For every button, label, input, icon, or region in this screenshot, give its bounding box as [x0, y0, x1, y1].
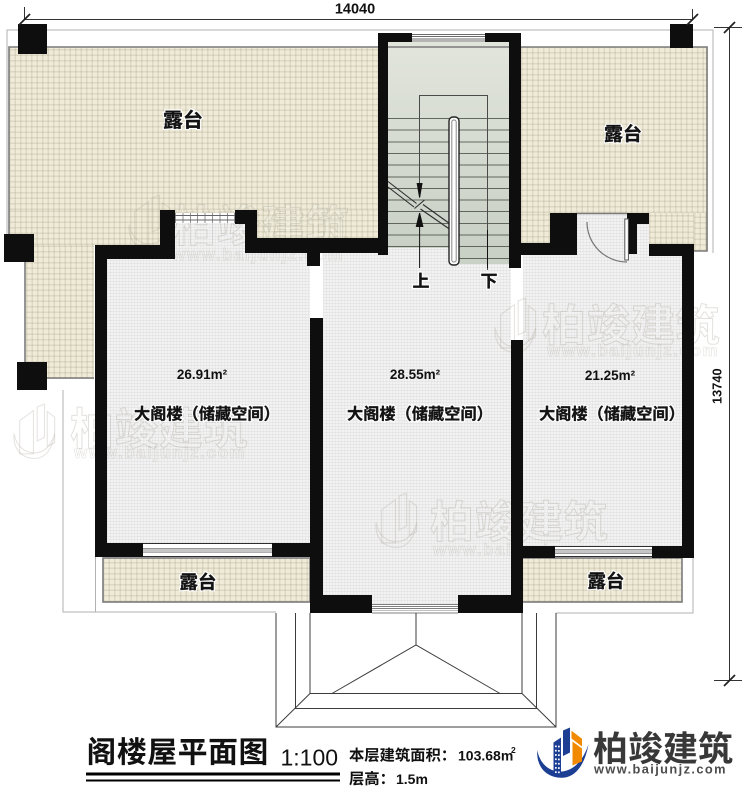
svg-text:www.baijunjz.com: www.baijunjz.com [593, 762, 727, 777]
svg-text:26.91m²: 26.91m² [177, 367, 228, 382]
svg-text:103.68m: 103.68m [458, 748, 513, 764]
svg-text:2: 2 [511, 745, 516, 755]
svg-text:28.55m²: 28.55m² [390, 367, 441, 382]
svg-text:21.25m²: 21.25m² [585, 368, 636, 383]
svg-text:14040: 14040 [335, 2, 375, 18]
svg-text:1.5m: 1.5m [396, 771, 428, 787]
svg-text:13740: 13740 [710, 368, 725, 404]
svg-text:1:100: 1:100 [281, 745, 339, 771]
